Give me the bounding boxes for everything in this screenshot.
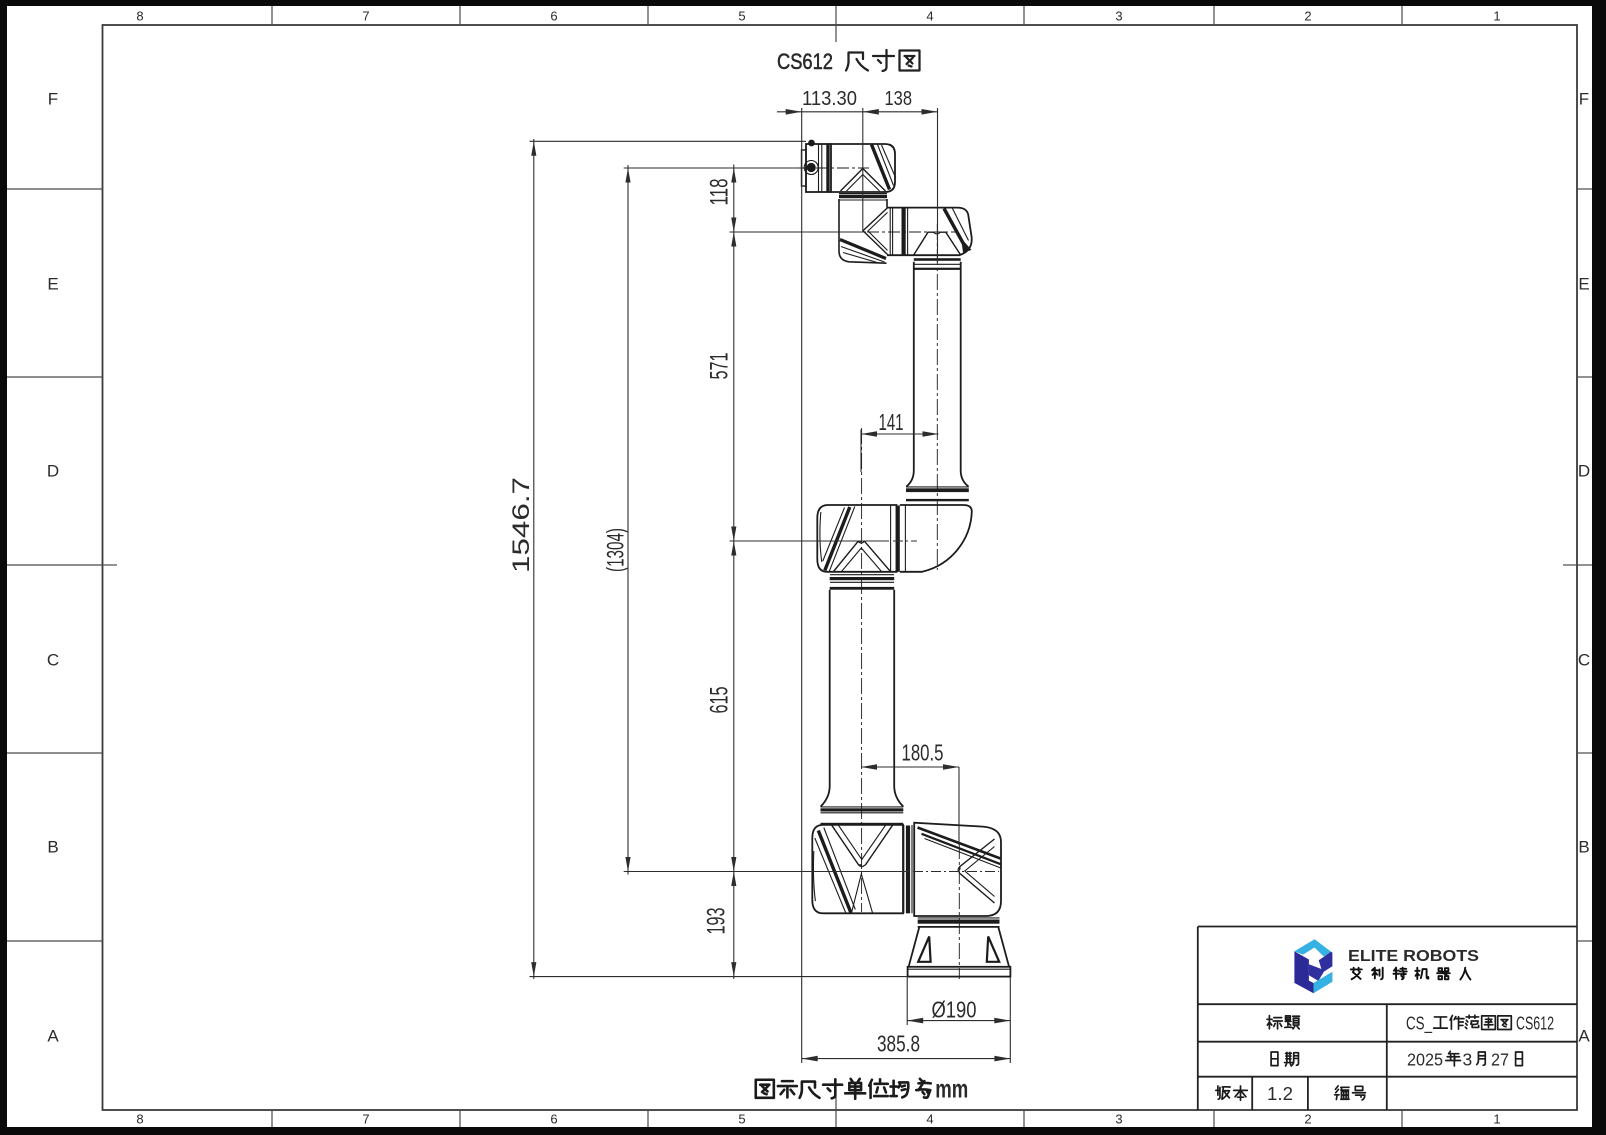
svg-text:3: 3 <box>1463 1050 1473 1070</box>
svg-text:2025: 2025 <box>1407 1050 1443 1070</box>
svg-text:6: 6 <box>550 9 557 24</box>
svg-text:5: 5 <box>738 1112 745 1127</box>
svg-text:B: B <box>1578 838 1589 857</box>
svg-text:F: F <box>1579 90 1589 109</box>
svg-text:CS612: CS612 <box>777 49 833 74</box>
svg-text:2: 2 <box>1304 9 1311 24</box>
svg-text:385.8: 385.8 <box>877 1031 920 1057</box>
svg-text:3: 3 <box>1115 9 1122 24</box>
svg-text:193: 193 <box>703 908 731 935</box>
svg-text:118: 118 <box>706 179 734 206</box>
svg-text:mm: mm <box>935 1074 968 1104</box>
svg-text:1.2: 1.2 <box>1267 1084 1293 1104</box>
svg-text:ELITE ROBOTS: ELITE ROBOTS <box>1348 948 1479 965</box>
svg-text:8: 8 <box>136 1112 143 1127</box>
svg-text:C: C <box>1578 651 1590 670</box>
svg-text:C: C <box>47 651 59 670</box>
svg-text:7: 7 <box>362 1112 369 1127</box>
svg-text:Ø190: Ø190 <box>932 997 977 1023</box>
svg-text:180.5: 180.5 <box>902 740 944 766</box>
svg-text:6: 6 <box>550 1112 557 1127</box>
svg-text:141: 141 <box>879 409 904 435</box>
svg-text:4: 4 <box>926 1112 933 1127</box>
svg-text:1: 1 <box>1493 9 1500 24</box>
svg-text:8: 8 <box>136 9 143 24</box>
svg-text:615: 615 <box>706 687 734 714</box>
svg-text:CS612: CS612 <box>1516 1014 1554 1034</box>
svg-text:E: E <box>1578 275 1589 294</box>
svg-text:1546.7: 1546.7 <box>508 477 535 573</box>
svg-text:2: 2 <box>1304 1112 1311 1127</box>
svg-text:5: 5 <box>738 9 745 24</box>
svg-text:113.30: 113.30 <box>802 87 857 110</box>
svg-text:A: A <box>1578 1027 1590 1046</box>
svg-text:571: 571 <box>706 353 734 380</box>
svg-text:A: A <box>47 1027 59 1046</box>
svg-text:D: D <box>1578 462 1590 481</box>
svg-text:1: 1 <box>1493 1112 1500 1127</box>
svg-text:4: 4 <box>926 9 933 24</box>
svg-text:D: D <box>47 462 59 481</box>
svg-text:(1304): (1304) <box>603 528 630 572</box>
svg-text:7: 7 <box>362 9 369 24</box>
svg-text:3: 3 <box>1115 1112 1122 1127</box>
svg-text:B: B <box>47 838 58 857</box>
svg-text:E: E <box>47 275 58 294</box>
svg-text:F: F <box>48 90 58 109</box>
svg-text:138: 138 <box>885 87 913 110</box>
svg-text:CS_: CS_ <box>1406 1014 1433 1035</box>
svg-text:27: 27 <box>1491 1050 1509 1070</box>
